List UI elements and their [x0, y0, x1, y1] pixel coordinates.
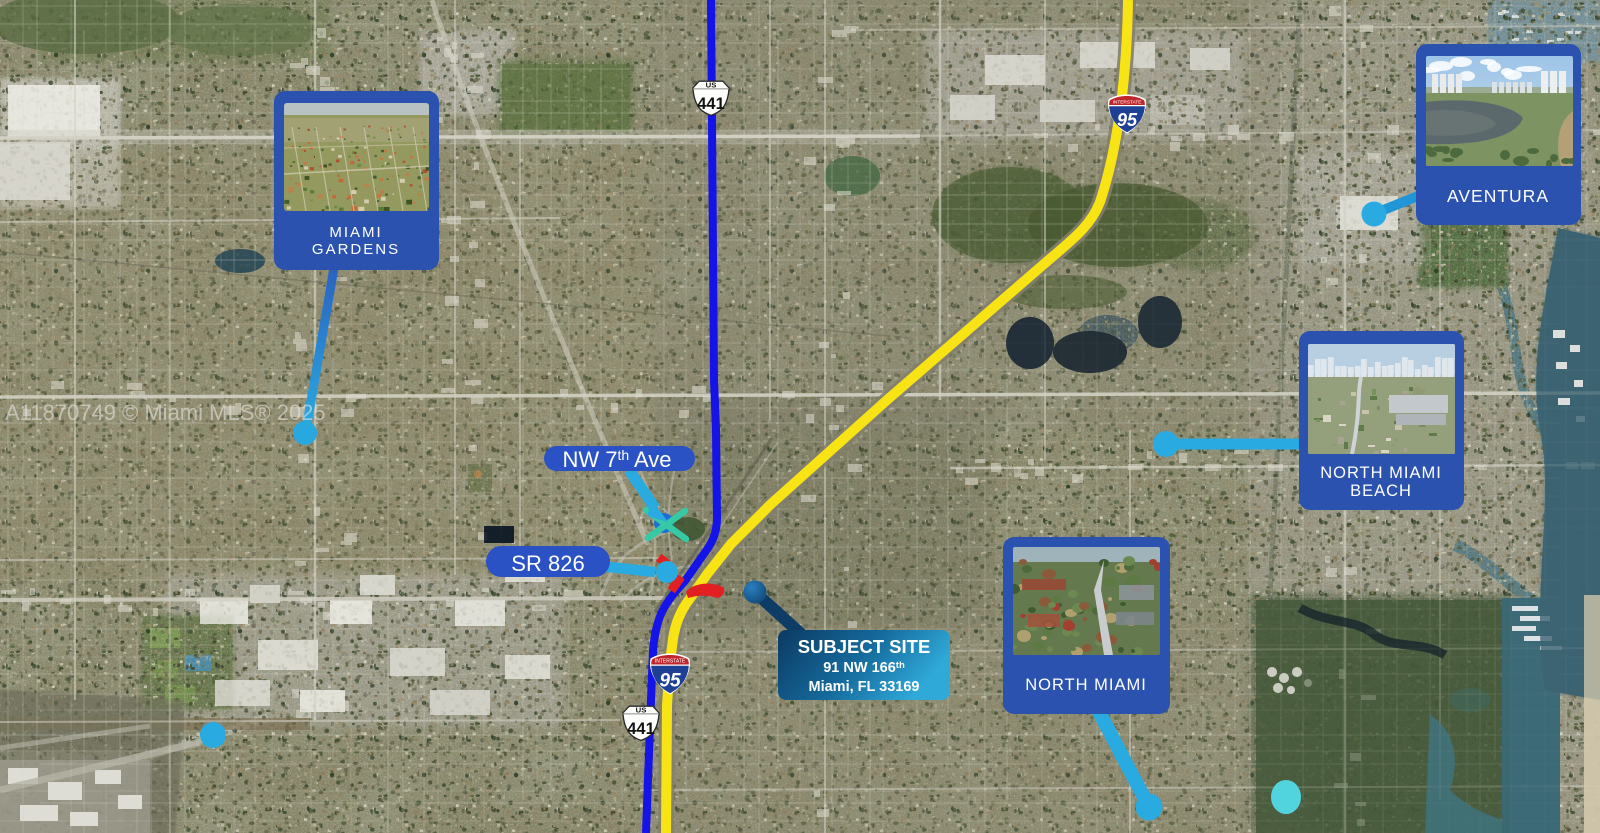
svg-text:95: 95 — [1117, 110, 1138, 130]
svg-text:SR 826: SR 826 — [511, 551, 584, 576]
svg-text:NORTH MIAMI: NORTH MIAMI — [1320, 464, 1442, 482]
svg-text:A11870749 © Miami MLS® 2025: A11870749 © Miami MLS® 2025 — [5, 400, 326, 425]
svg-text:Miami, FL 33169: Miami, FL 33169 — [809, 679, 920, 695]
svg-text:MIAMI: MIAMI — [329, 224, 382, 241]
svg-text:95: 95 — [659, 671, 681, 692]
svg-text:INTERSTATE: INTERSTATE — [1113, 99, 1142, 105]
svg-text:AVENTURA: AVENTURA — [1447, 186, 1549, 206]
svg-text:NW 7th Ave: NW 7th Ave — [562, 447, 671, 472]
svg-text:INTERSTATE: INTERSTATE — [655, 659, 686, 665]
svg-text:US: US — [636, 705, 647, 714]
svg-text:441: 441 — [697, 95, 724, 113]
svg-text:91 NW 166th: 91 NW 166th — [823, 660, 905, 676]
svg-text:NORTH MIAMI: NORTH MIAMI — [1025, 676, 1147, 694]
svg-text:SUBJECT SITE: SUBJECT SITE — [798, 636, 931, 657]
svg-text:BEACH: BEACH — [1350, 482, 1412, 500]
svg-text:441: 441 — [627, 720, 654, 738]
svg-text:GARDENS: GARDENS — [312, 241, 400, 258]
svg-text:US: US — [706, 80, 717, 89]
